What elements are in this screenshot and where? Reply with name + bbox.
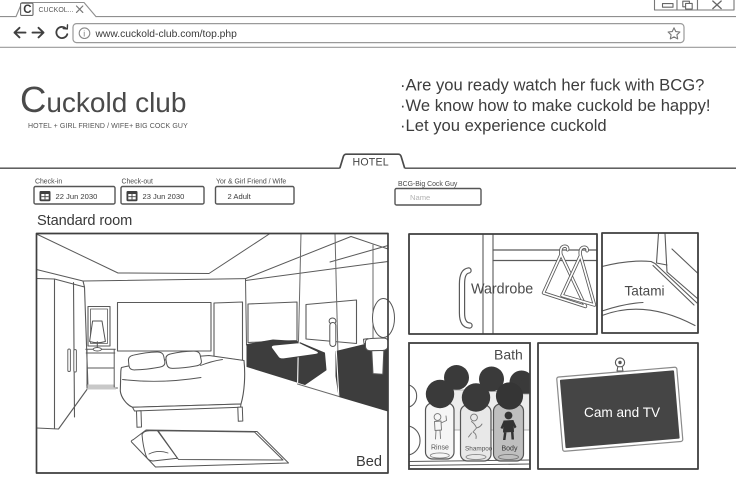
svg-text:·Let you experience cuckold: ·Let you experience cuckold [400, 116, 607, 135]
svg-text:Bath: Bath [494, 347, 523, 363]
svg-text:BCG-Big Cock Guy: BCG-Big Cock Guy [398, 181, 458, 188]
svg-text:Bed: Bed [356, 454, 382, 470]
svg-text:CUCKOL...: CUCKOL... [39, 7, 74, 14]
svg-text:Standard room: Standard room [37, 213, 132, 229]
svg-text:Body: Body [502, 446, 518, 453]
svg-text:Name: Name [410, 193, 430, 202]
svg-text:Cam and TV: Cam and TV [584, 405, 660, 420]
svg-text:2 Adult: 2 Adult [228, 192, 252, 201]
svg-text:Check-in: Check-in [35, 179, 62, 186]
svg-text:·Are you ready watch her fuck: ·Are you ready watch her fuck with BCG? [400, 76, 704, 95]
svg-text:22 Jun 2030: 22 Jun 2030 [56, 192, 98, 201]
svg-text:Check-out: Check-out [122, 179, 153, 186]
svg-text:Shampoo: Shampoo [465, 446, 493, 453]
svg-text:Rinse: Rinse [431, 445, 449, 452]
svg-text:C: C [23, 4, 31, 16]
svg-text:HOTEL: HOTEL [353, 156, 389, 168]
svg-text:i: i [83, 29, 85, 39]
svg-text:·We know how to make cuckold b: ·We know how to make cuckold be happy! [400, 96, 711, 115]
svg-text:Wardrobe: Wardrobe [471, 282, 533, 298]
svg-text:23 Jun 2030: 23 Jun 2030 [143, 192, 185, 201]
svg-text:www.cuckold-club.com/top.php: www.cuckold-club.com/top.php [95, 29, 238, 40]
svg-text:Tatami: Tatami [625, 284, 665, 299]
svg-text:Cuckold club: Cuckold club [20, 79, 186, 120]
svg-text:Yor & Girl Friend / Wife: Yor & Girl Friend / Wife [216, 179, 286, 186]
svg-text:HOTEL + GIRL FRIEND / WIFE+ BI: HOTEL + GIRL FRIEND / WIFE+ BIG COCK GUY [28, 123, 188, 130]
